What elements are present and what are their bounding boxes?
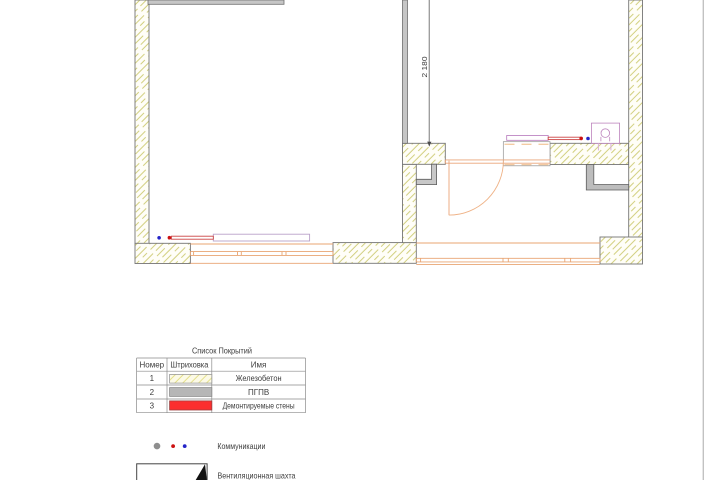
svg-text:2 180: 2 180 bbox=[420, 57, 429, 78]
svg-text:Вентиляционная шахта: Вентиляционная шахта bbox=[218, 470, 296, 480]
svg-text:Демонтируемые стены: Демонтируемые стены bbox=[223, 402, 295, 411]
svg-text:Имя: Имя bbox=[251, 360, 267, 369]
svg-text:ПГПВ: ПГПВ bbox=[248, 388, 269, 397]
svg-text:Список Покрытий: Список Покрытий bbox=[192, 346, 252, 356]
svg-text:Железобетон: Железобетон bbox=[236, 374, 282, 383]
svg-text:3: 3 bbox=[150, 402, 155, 411]
svg-text:2: 2 bbox=[150, 388, 155, 397]
svg-text:Штриховка: Штриховка bbox=[170, 360, 209, 369]
svg-text:1: 1 bbox=[150, 374, 155, 383]
svg-text:Коммуникации: Коммуникации bbox=[217, 441, 265, 451]
svg-text:Номер: Номер bbox=[139, 360, 164, 369]
